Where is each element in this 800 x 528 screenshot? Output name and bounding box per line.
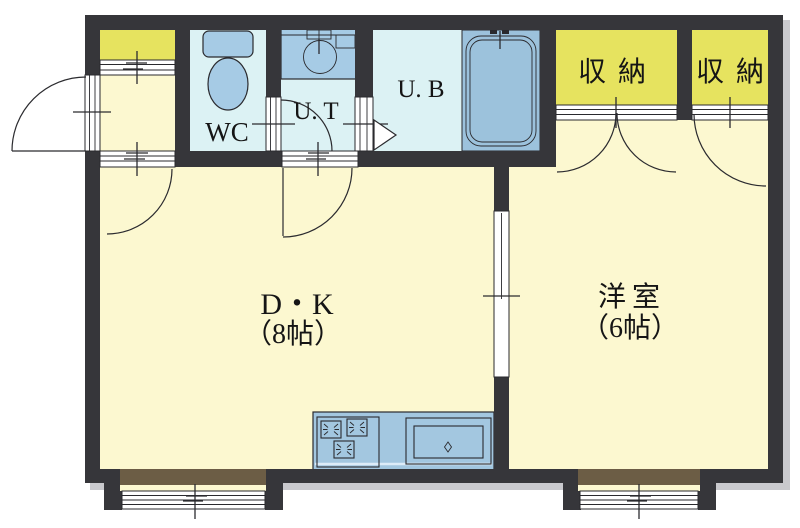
- dk-bay-window: [120, 469, 266, 519]
- washbasin-icon: [281, 29, 356, 79]
- floor-plan: WC U. T U. B 収納 収納 D・K （8帖） 洋室 （6帖）: [0, 0, 800, 528]
- utility-label: U. T: [293, 98, 338, 125]
- bathtub-icon: [462, 27, 540, 151]
- western-room-label: 洋室: [598, 281, 666, 313]
- western-room-size-label: （6帖）: [581, 312, 679, 344]
- dk-label: D・K: [260, 288, 334, 321]
- storage-right-label: 収納: [696, 56, 776, 88]
- kitchen-counter: [313, 412, 494, 470]
- western-bay-window: [578, 469, 700, 519]
- western-room-floor-left: [509, 167, 556, 469]
- wc-label: WC: [205, 117, 249, 147]
- storage-left-label: 収納: [578, 56, 658, 88]
- dk-size-label: （8帖）: [244, 318, 342, 350]
- entrance-door[interactable]: [12, 77, 86, 151]
- bath-label: U. B: [397, 76, 444, 103]
